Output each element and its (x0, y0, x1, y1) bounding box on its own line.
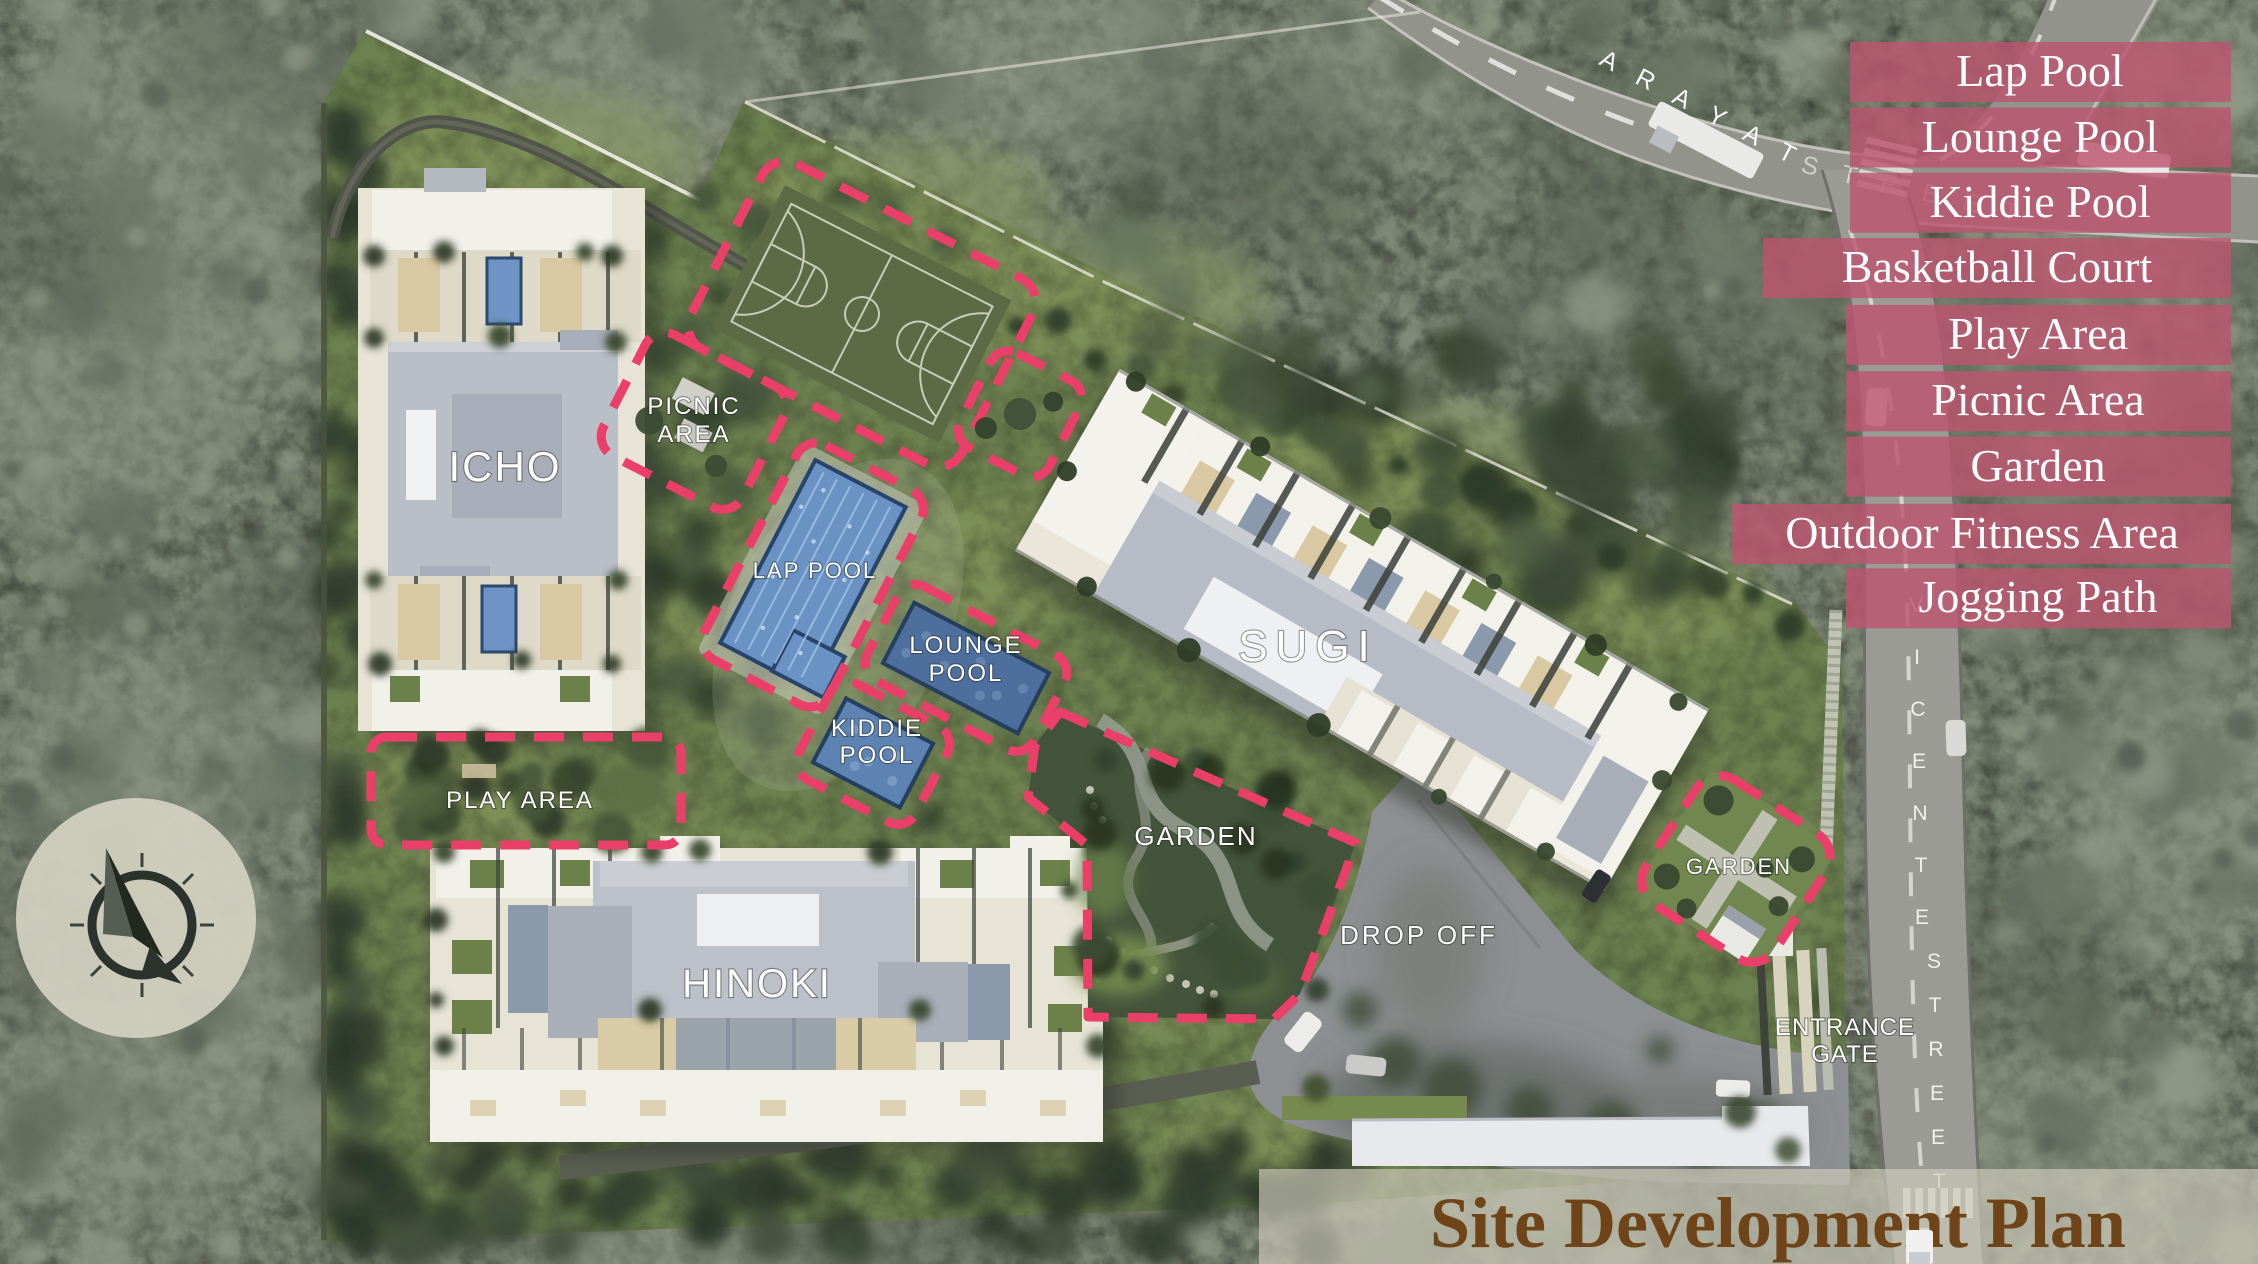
svg-text:R: R (1928, 1038, 1943, 1061)
svg-text:I: I (1914, 646, 1920, 669)
svg-text:Play Area: Play Area (1948, 308, 2128, 359)
svg-text:LOUNGE: LOUNGE (909, 632, 1022, 659)
svg-text:Picnic Area: Picnic Area (1931, 374, 2144, 425)
svg-text:GARDEN: GARDEN (1134, 821, 1257, 851)
svg-text:Lounge Pool: Lounge Pool (1922, 111, 2158, 162)
svg-text:E: E (1931, 1126, 1945, 1149)
svg-text:ICHO: ICHO (449, 443, 562, 490)
svg-text:GARDEN: GARDEN (1686, 854, 1792, 879)
svg-text:AREA: AREA (657, 421, 730, 448)
svg-text:T: T (1915, 854, 1928, 877)
svg-text:Kiddie Pool: Kiddie Pool (1929, 176, 2150, 227)
svg-text:HINOKI: HINOKI (682, 962, 832, 1006)
svg-text:PLAY AREA: PLAY AREA (446, 787, 594, 814)
svg-text:KIDDIE: KIDDIE (831, 715, 923, 742)
svg-text:E: E (1930, 1082, 1944, 1105)
svg-text:E: E (1915, 906, 1929, 929)
svg-text:Basketball Court: Basketball Court (1842, 241, 2153, 292)
svg-text:Site Development Plan: Site Development Plan (1430, 1183, 2126, 1263)
svg-text:Jogging Path: Jogging Path (1919, 571, 2158, 622)
svg-text:LAP POOL: LAP POOL (753, 558, 877, 583)
svg-text:Outdoor Fitness Area: Outdoor Fitness Area (1785, 507, 2179, 558)
svg-text:Garden: Garden (1970, 440, 2105, 491)
svg-text:POOL: POOL (840, 742, 915, 769)
svg-text:GATE: GATE (1811, 1041, 1879, 1068)
svg-text:SUGI: SUGI (1238, 622, 1378, 671)
svg-text:POOL: POOL (929, 660, 1004, 687)
svg-text:T: T (1929, 994, 1942, 1017)
svg-text:Lap Pool: Lap Pool (1956, 45, 2123, 96)
svg-text:N: N (1912, 802, 1927, 825)
svg-text:ENTRANCE: ENTRANCE (1775, 1014, 1915, 1041)
svg-text:E: E (1912, 750, 1926, 773)
svg-text:S: S (1927, 950, 1941, 973)
svg-text:DROP OFF: DROP OFF (1340, 920, 1498, 950)
svg-text:C: C (1910, 698, 1925, 721)
svg-text:PICNIC: PICNIC (647, 393, 740, 420)
